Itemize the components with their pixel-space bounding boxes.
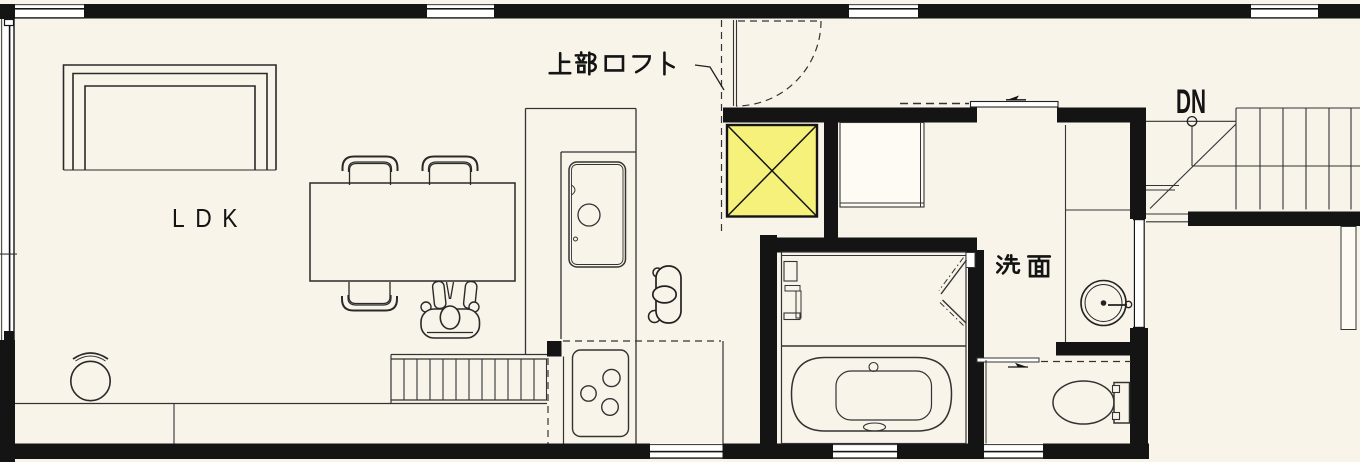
svg-text:LDK: LDK xyxy=(172,203,248,233)
svg-text:DN: DN xyxy=(1176,83,1206,121)
